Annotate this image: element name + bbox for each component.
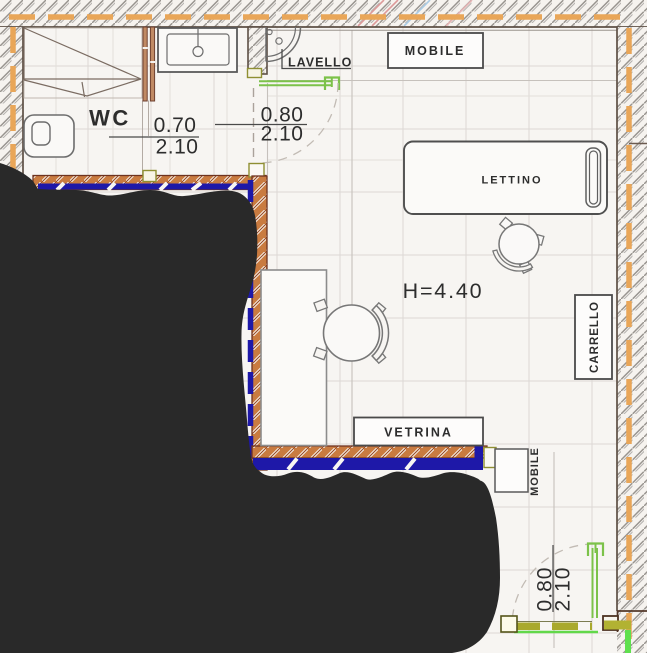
svg-text:0.70: 0.70 [154, 114, 197, 137]
svg-text:2.10: 2.10 [552, 567, 575, 612]
svg-text:WC: WC [89, 106, 131, 131]
svg-text:2.10: 2.10 [261, 123, 304, 146]
svg-text:LETTINO: LETTINO [481, 175, 542, 187]
svg-text:MOBILE: MOBILE [529, 447, 541, 496]
svg-text:CARRELLO: CARRELLO [589, 301, 601, 373]
svg-text:LAVELLO: LAVELLO [288, 56, 352, 70]
svg-text:H=4.40: H=4.40 [403, 279, 484, 303]
svg-text:MOBILE: MOBILE [405, 44, 466, 58]
svg-text:VETRINA: VETRINA [384, 426, 453, 440]
svg-text:2.10: 2.10 [156, 136, 199, 159]
